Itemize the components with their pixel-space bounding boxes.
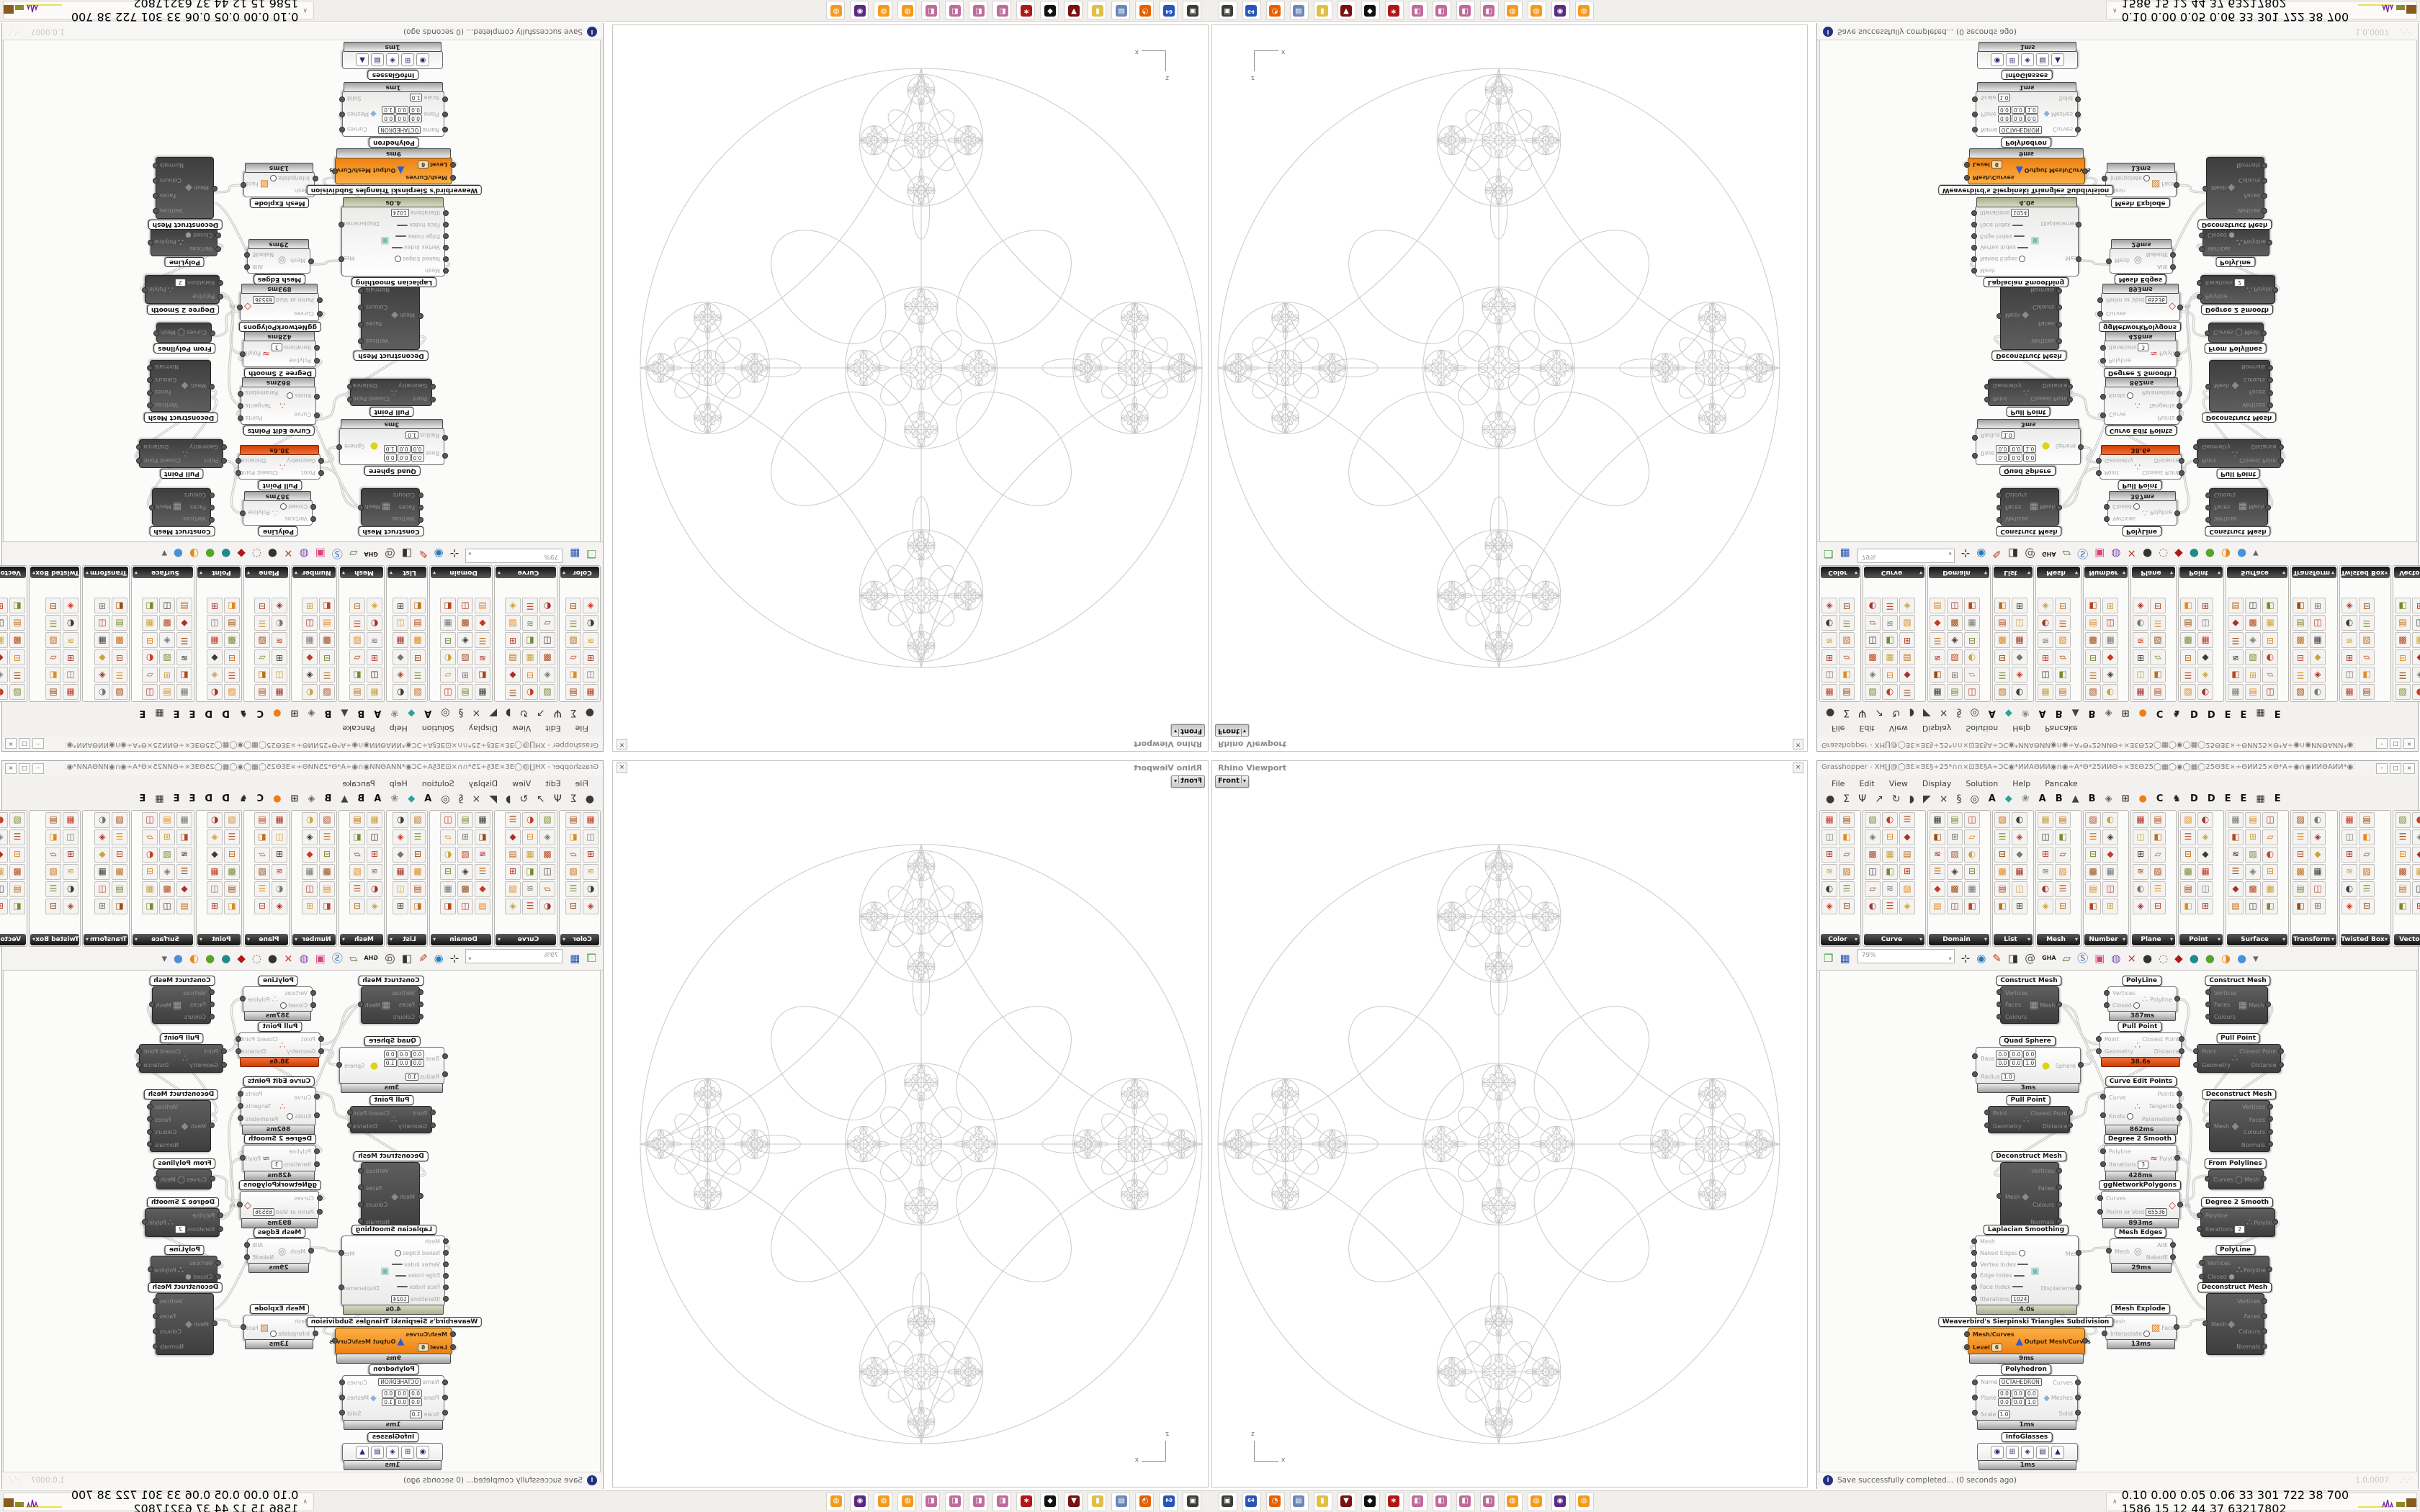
component-icon[interactable]: ▦ (272, 684, 287, 700)
gh-node-mesh-explode[interactable]: MeshInterpolate▨Faces (243, 1315, 315, 1341)
input-port[interactable] (1972, 1410, 1978, 1416)
component-icon[interactable]: ☰ (9, 829, 25, 845)
gh-node-construct-mesh-a[interactable]: VerticesFacesColours▦Mesh (361, 986, 420, 1024)
value-box[interactable]: 0.0 (398, 1059, 411, 1067)
component-icon[interactable]: ▤ (176, 899, 192, 914)
grasshopper-titlebar[interactable]: Grasshopper - XH∐@◯ƎƐ×ƎƐ§÷25*∩∩×⊡ƎƐ§A÷ƆC… (1817, 761, 2418, 775)
component-icon[interactable]: ▦ (583, 684, 599, 700)
component-icon[interactable]: ◈ (2197, 667, 2213, 683)
find-component-icon[interactable]: Ⓢ (2077, 546, 2088, 562)
component-icon[interactable]: ◫ (583, 667, 599, 683)
input-port[interactable] (2100, 1148, 2106, 1154)
plugin-tab[interactable]: ▲ (341, 793, 348, 804)
menu-item-solution[interactable]: Solution (1966, 724, 1998, 733)
input-port[interactable] (2205, 1176, 2210, 1182)
window-button[interactable]: – (32, 763, 44, 774)
zoom-level-input[interactable]: 79%▾ (1857, 949, 1955, 963)
inkscape-icon[interactable]: ◆ (1361, 1493, 1380, 1511)
component-icon[interactable]: ⊟ (319, 847, 335, 863)
component-icon[interactable]: ☰ (1882, 899, 1898, 914)
tray-chevron-icon[interactable]: ∧ (2112, 1498, 2117, 1506)
component-icon[interactable]: ◫ (1964, 812, 1980, 828)
value-box[interactable] (397, 1286, 408, 1287)
component-icon[interactable]: ◈ (2012, 667, 2027, 683)
output-port[interactable] (238, 1103, 243, 1109)
value-box[interactable]: 1024 (391, 209, 409, 217)
component-icon[interactable]: ▦ (440, 881, 456, 897)
value-box[interactable]: 65536 (253, 297, 274, 305)
glasses-icon[interactable]: ▤ (371, 53, 384, 66)
component-icon[interactable]: ▨ (410, 684, 426, 700)
more-caret[interactable]: ▾ (2253, 548, 2259, 561)
palette-category-pill[interactable]: Point▾ (2179, 934, 2223, 945)
input-port[interactable] (209, 1002, 215, 1007)
component-icon[interactable]: ▩ (319, 864, 335, 880)
plugin-tab[interactable]: E (2275, 793, 2281, 804)
component-icon[interactable]: ⊞ (2102, 598, 2118, 613)
value-box[interactable]: 0.0 (411, 1059, 424, 1067)
component-icon[interactable]: ⊞ (0, 598, 8, 613)
plugin-tab[interactable]: E (189, 793, 195, 804)
component-icon[interactable]: ◫ (0, 881, 8, 897)
component-icon[interactable]: ◫ (2038, 667, 2053, 683)
component-icon[interactable]: ◧ (2055, 667, 2071, 683)
component-icon[interactable]: ▤ (112, 615, 127, 631)
paint-app-icon-3[interactable]: ◧ (1456, 1, 1475, 19)
value-box[interactable] (395, 235, 406, 237)
component-icon[interactable]: ▦ (207, 632, 223, 648)
component-icon[interactable]: ▩ (2293, 632, 2308, 648)
glasses-icon[interactable]: ⊞ (401, 1446, 414, 1459)
crossing-wires-icon[interactable]: × (284, 548, 293, 561)
component-icon[interactable]: ☰ (319, 829, 335, 845)
component-icon[interactable]: ⊟ (2359, 899, 2375, 914)
toggle-dot[interactable] (270, 175, 277, 181)
input-port[interactable] (1971, 210, 1977, 216)
toggle-dot[interactable] (280, 503, 287, 510)
sketch-icon[interactable]: ▱ (2063, 548, 2071, 561)
component-icon[interactable]: ⊞ (94, 598, 110, 613)
media-player-icon[interactable]: ▼ (1337, 1, 1356, 19)
component-icon[interactable]: ⊞ (63, 847, 79, 863)
component-icon[interactable]: ◧ (522, 632, 538, 648)
component-icon[interactable]: ▨ (2359, 864, 2375, 880)
input-port[interactable] (1971, 1250, 1977, 1256)
value-box[interactable]: 1.0 (2023, 1059, 2036, 1067)
component-icon[interactable]: ◫ (393, 615, 408, 631)
component-icon[interactable]: ◐ (94, 684, 110, 700)
value-box[interactable]: 3 (272, 1161, 282, 1169)
component-icon[interactable]: ⊞ (367, 847, 382, 863)
component-icon[interactable]: ◆ (2102, 847, 2118, 863)
window-button[interactable]: – (32, 738, 44, 749)
component-icon[interactable]: ⊞ (63, 649, 79, 665)
component-icon[interactable]: ⊞ (1899, 864, 1915, 880)
component-icon[interactable]: ◈ (63, 899, 79, 914)
component-icon[interactable]: ⊞ (583, 847, 599, 863)
remote-control-icon[interactable]: @ (385, 548, 395, 561)
glasses-icon[interactable]: ◈ (2021, 1446, 2034, 1459)
input-port[interactable] (2106, 1248, 2112, 1254)
component-icon[interactable]: ◫ (2012, 615, 2027, 631)
palette-category-pill[interactable]: Curve▾ (496, 934, 556, 945)
component-icon[interactable]: ◈ (2412, 829, 2420, 845)
output-port[interactable] (2177, 1091, 2182, 1097)
component-icon[interactable]: ◆ (1899, 829, 1915, 845)
component-icon[interactable]: ▩ (112, 864, 127, 880)
plugin-tab[interactable]: B (2089, 708, 2096, 719)
component-icon[interactable]: ◧ (2395, 899, 2411, 914)
component-icon[interactable]: ⊟ (565, 899, 581, 914)
component-icon[interactable]: ▩ (457, 881, 473, 897)
component-icon[interactable]: ◧ (224, 899, 240, 914)
paint-app-icon-2[interactable]: ◧ (969, 1493, 987, 1511)
component-icon[interactable]: ≋ (2341, 864, 2357, 880)
component-icon[interactable]: ◫ (272, 829, 287, 845)
component-icon[interactable]: ▨ (224, 812, 240, 828)
component-icon[interactable]: ▤ (2395, 615, 2411, 631)
component-icon[interactable]: ◐ (522, 812, 538, 828)
value-box[interactable]: 0.0 (1996, 445, 2009, 453)
plugin-tab[interactable]: ▲ (2072, 793, 2079, 804)
component-icon[interactable]: ◆ (0, 847, 8, 863)
tab-tool-icon[interactable]: ↗ (537, 708, 545, 719)
component-icon[interactable]: ◈ (159, 632, 175, 648)
component-icon[interactable]: ◫ (457, 598, 473, 613)
component-icon[interactable]: ▤ (410, 881, 426, 897)
component-icon[interactable]: ◈ (457, 864, 473, 880)
toggle-dot[interactable] (2127, 1113, 2133, 1120)
zoom-extents-icon[interactable]: ⊹ (1961, 952, 1971, 965)
zoom-level-input[interactable]: 79%▾ (465, 949, 563, 963)
input-port[interactable] (2100, 1112, 2106, 1118)
component-icon[interactable]: ⊞ (272, 847, 287, 863)
input-port[interactable] (314, 345, 320, 351)
input-port[interactable] (2096, 1036, 2102, 1042)
value-box[interactable]: 2 (175, 279, 186, 287)
find-component-icon[interactable]: Ⓢ (332, 546, 343, 562)
output-port[interactable] (2076, 222, 2081, 228)
value-box[interactable]: 0.0 (2009, 454, 2022, 462)
output-port[interactable] (332, 168, 338, 174)
value-box[interactable]: 1.0 (2025, 106, 2038, 114)
output-port[interactable] (2067, 1122, 2073, 1128)
component-icon[interactable]: ⊟ (2293, 649, 2308, 665)
input-port[interactable] (443, 210, 449, 216)
input-port[interactable] (443, 1284, 449, 1290)
component-icon[interactable]: ▩ (224, 864, 240, 880)
component-icon[interactable]: ▱ (2262, 829, 2278, 845)
component-icon[interactable]: ◐ (2197, 684, 2213, 700)
component-icon[interactable]: ▦ (393, 864, 408, 880)
component-icon[interactable]: ▱ (2262, 667, 2278, 683)
plugin-tab[interactable]: ◆ (2005, 708, 2012, 719)
component-icon[interactable]: ⊞ (94, 899, 110, 914)
component-icon[interactable]: ▨ (2293, 684, 2308, 700)
component-icon[interactable]: ▱ (539, 615, 555, 631)
component-icon[interactable]: ⊟ (2262, 864, 2278, 880)
plugin-tab[interactable]: C (2156, 708, 2164, 719)
component-icon[interactable]: ◧ (2228, 829, 2244, 845)
gh-node-ggnetworkpolygons[interactable]: CurvesPerim or Void65536◇Cells (240, 1191, 319, 1220)
component-icon[interactable]: ◫ (2012, 881, 2027, 897)
palette-category-pill[interactable]: Point▾ (197, 934, 241, 945)
tab-tool-icon[interactable]: × (472, 708, 481, 719)
value-box[interactable]: 1.0 (384, 445, 397, 453)
clipping-box-icon[interactable]: ◨ (2008, 548, 2018, 561)
component-icon[interactable]: ◧ (2293, 598, 2308, 613)
plugin-tab[interactable]: ◈ (308, 793, 315, 804)
ball-green-icon[interactable]: ● (2205, 548, 2215, 561)
input-port[interactable] (1971, 268, 1977, 274)
component-icon[interactable]: ▦ (2228, 812, 2244, 828)
floppy-64-icon[interactable]: 64 (1159, 1493, 1178, 1511)
component-icon[interactable]: ◐ (2133, 615, 2148, 631)
component-icon[interactable]: ◫ (1865, 632, 1881, 648)
component-icon[interactable]: ◐ (2412, 684, 2420, 700)
component-icon[interactable]: ▱ (142, 829, 158, 845)
component-icon[interactable]: ◧ (565, 667, 581, 683)
component-icon[interactable]: ▨ (2245, 649, 2261, 665)
output-port[interactable] (332, 1338, 338, 1344)
value-box[interactable]: 1.0 (384, 1059, 397, 1067)
gh-node-deconstruct-mesh-a[interactable]: Mesh◆VerticesFacesColoursNormals (2000, 281, 2059, 350)
output-port[interactable] (2267, 1266, 2272, 1272)
component-icon[interactable]: ▨ (2245, 847, 2261, 863)
component-icon[interactable]: ◧ (1882, 632, 1898, 648)
component-icon[interactable]: ◫ (1947, 899, 1963, 914)
output-port[interactable] (2272, 287, 2278, 293)
component-icon[interactable]: ⊟ (522, 829, 538, 845)
gh-node-infoglasses[interactable]: ◉⊞◈▤▲ (1977, 50, 2078, 69)
component-icon[interactable]: ⊞ (1947, 829, 1963, 845)
tab-tool-icon[interactable]: ↻ (519, 708, 528, 719)
plugin-tab[interactable]: B (324, 793, 331, 804)
tab-tool-icon[interactable]: ◗ (506, 708, 511, 719)
output-port[interactable] (2078, 1062, 2084, 1068)
component-icon[interactable]: ▨ (1947, 847, 1963, 863)
cluster-bag-icon[interactable]: ▣ (315, 952, 326, 965)
chevron-down-icon[interactable]: ▾ (468, 953, 471, 965)
plugin-tab[interactable]: E (2241, 708, 2247, 719)
component-icon[interactable]: ☰ (2228, 864, 2244, 880)
component-icon[interactable]: ▤ (505, 649, 521, 665)
component-icon[interactable]: ▤ (457, 812, 473, 828)
paint-app-icon-3[interactable]: ◧ (945, 1, 964, 19)
gh-node-pull-point-c[interactable]: PointGeometry∴Closest PointDistance (2197, 1044, 2281, 1073)
component-icon[interactable]: ▤ (159, 684, 175, 700)
gh-node-deconstruct-mesh-c[interactable]: Mesh◆VerticesFacesColoursNormals (2209, 1100, 2270, 1152)
component-icon[interactable]: ◈ (0, 829, 8, 845)
component-icon[interactable]: ◐ (142, 847, 158, 863)
component-icon[interactable]: ☰ (224, 829, 240, 845)
component-icon[interactable]: ▤ (2055, 684, 2071, 700)
component-icon[interactable]: ◫ (2245, 899, 2261, 914)
output-port[interactable] (149, 1002, 155, 1007)
plugin-tab[interactable]: D (2208, 793, 2215, 804)
tab-tool-icon[interactable]: ◤ (1923, 708, 1931, 719)
open-file-icon[interactable]: ❒ (587, 548, 596, 561)
output-port[interactable] (153, 1313, 158, 1319)
component-icon[interactable]: ◐ (522, 684, 538, 700)
paint-app-icon-1[interactable]: ◧ (1409, 1493, 1428, 1511)
component-icon[interactable]: ▦ (176, 812, 192, 828)
ball-blue-icon[interactable]: ● (2237, 548, 2246, 561)
input-port[interactable] (310, 990, 316, 996)
component-icon[interactable]: ◧ (2085, 598, 2101, 613)
component-icon[interactable]: ◐ (207, 684, 223, 700)
value-box[interactable]: 0.0 (382, 1390, 395, 1398)
value-box[interactable]: 0.0 (2012, 1398, 2025, 1406)
output-port[interactable] (347, 384, 353, 390)
component-icon[interactable]: ▨ (319, 684, 335, 700)
output-port[interactable] (2267, 365, 2273, 371)
input-port[interactable] (2205, 330, 2210, 336)
palette-category-pill[interactable]: Plane▾ (2132, 934, 2175, 945)
menu-item-view[interactable]: View (1889, 724, 1908, 733)
component-icon[interactable]: ☰ (2085, 829, 2101, 845)
gh-node-construct-mesh-a[interactable]: VerticesFacesColours▦Mesh (2000, 986, 2059, 1024)
component-icon[interactable]: ▨ (410, 812, 426, 828)
component-icon[interactable]: ⊟ (2180, 649, 2196, 665)
terminal-icon[interactable]: ▣ (1183, 1, 1201, 19)
value-box[interactable]: 0.0 (409, 1398, 422, 1406)
component-icon[interactable]: ◈ (1865, 667, 1881, 683)
resize-grip[interactable]: ⋰⋰ (6, 28, 21, 35)
output-port[interactable] (2177, 391, 2182, 397)
plugin-tab[interactable]: ● (2138, 793, 2146, 804)
calculator-icon[interactable]: ▤ (1111, 1, 1130, 19)
floppy-64-icon[interactable]: 64 (1242, 1493, 1261, 1511)
component-icon[interactable]: ▩ (1994, 864, 2010, 880)
component-icon[interactable]: ☰ (2150, 615, 2166, 631)
output-port[interactable] (2056, 1002, 2062, 1007)
input-port[interactable] (2096, 1048, 2102, 1054)
output-port[interactable] (149, 505, 155, 510)
component-icon[interactable]: ◧ (2180, 598, 2196, 613)
viewport-view-button[interactable]: Front▾ (1171, 775, 1205, 788)
component-icon[interactable]: ⊞ (2133, 847, 2148, 863)
plugin-tab[interactable]: C (2156, 793, 2164, 804)
component-icon[interactable]: ⊟ (1994, 649, 2010, 665)
component-icon[interactable]: ⊟ (254, 899, 270, 914)
output-port[interactable] (238, 391, 243, 397)
component-icon[interactable]: ☰ (349, 881, 365, 897)
input-port[interactable] (2199, 1274, 2205, 1279)
component-icon[interactable]: ≋ (583, 632, 599, 648)
component-icon[interactable]: ◐ (0, 812, 8, 828)
input-port[interactable] (443, 233, 449, 239)
toggle-dot[interactable] (185, 232, 192, 238)
output-port[interactable] (142, 287, 148, 293)
output-port[interactable] (148, 1266, 153, 1272)
gh-node-ggnetworkpolygons[interactable]: CurvesPerim or Void65536◇Cells (2101, 292, 2180, 321)
input-port[interactable] (443, 1250, 449, 1256)
component-icon[interactable]: ▤ (505, 847, 521, 863)
output-port[interactable] (339, 1284, 344, 1290)
grasshopper-canvas[interactable]: VerticesFacesColours▦MeshConstruct MeshB… (1819, 39, 2417, 542)
terminal-icon[interactable]: ▣ (1219, 1, 1237, 19)
component-icon[interactable]: ▨ (2180, 812, 2196, 828)
component-icon[interactable]: ◈ (2412, 667, 2420, 683)
crossing-wires-icon[interactable]: × (284, 952, 293, 965)
terminal-icon[interactable]: ▣ (1183, 1493, 1201, 1511)
glasses-icon[interactable]: ◉ (1991, 1446, 2004, 1459)
window-button[interactable]: – (2376, 738, 2388, 749)
component-icon[interactable]: ▱ (565, 649, 581, 665)
paint-app-icon-4[interactable]: ◧ (1480, 1493, 1499, 1511)
clipping-box-icon[interactable]: ◨ (2008, 952, 2018, 965)
component-icon[interactable]: ▨ (9, 812, 25, 828)
plugin-tab[interactable]: C (257, 793, 264, 804)
component-icon[interactable]: ◆ (505, 667, 521, 683)
component-icon[interactable]: ◐ (1865, 899, 1881, 914)
component-icon[interactable]: ◈ (207, 667, 223, 683)
gh-node-pull-point-b[interactable]: PointGeometry∴Closest PointDistance (238, 454, 321, 480)
firefox-purple-icon[interactable]: ◉ (1551, 1493, 1570, 1511)
component-icon[interactable]: ◫ (367, 667, 382, 683)
component-icon[interactable]: ▨ (565, 864, 581, 880)
tab-tool-icon[interactable]: Ψ (554, 708, 562, 719)
component-icon[interactable]: ◫ (1964, 684, 1980, 700)
plugin-tab[interactable]: E (2275, 708, 2281, 719)
value-box[interactable]: 1.0 (405, 1073, 418, 1081)
component-icon[interactable]: ▦ (272, 812, 287, 828)
gh-node-from-polylines[interactable]: Curves○Mesh (2208, 1169, 2264, 1189)
value-box[interactable]: 6 (418, 161, 429, 168)
menu-item-file[interactable]: File (575, 779, 588, 788)
input-port[interactable] (2100, 345, 2106, 351)
input-port[interactable] (308, 258, 314, 264)
component-icon[interactable]: ⊞ (2012, 899, 2027, 914)
component-icon[interactable]: ≋ (1930, 847, 1945, 863)
input-port[interactable] (1972, 112, 1978, 117)
component-icon[interactable]: ▱ (1865, 881, 1881, 897)
output-port[interactable] (2174, 182, 2179, 188)
input-port[interactable] (2100, 358, 2106, 364)
component-icon[interactable]: ◆ (1930, 615, 1945, 631)
component-icon[interactable]: ⊟ (2150, 598, 2166, 613)
palette-category-pill[interactable]: Number▾ (292, 934, 336, 945)
gh-node-from-polylines[interactable]: Curves○Mesh (156, 1169, 212, 1189)
gh-node-degree-2-smooth-c[interactable]: PolylineIterations2∴Polyline (145, 1208, 220, 1237)
component-icon[interactable]: ◆ (94, 847, 110, 863)
input-port[interactable] (2197, 1212, 2202, 1218)
tab-tool-icon[interactable]: Σ (570, 708, 577, 719)
gha-loader-icon[interactable]: GHA (364, 955, 377, 961)
component-icon[interactable]: ◫ (2412, 615, 2420, 631)
gh-node-deconstruct-mesh-a[interactable]: Mesh◆VerticesFacesColoursNormals (2000, 1162, 2059, 1231)
input-port[interactable] (1996, 505, 2002, 510)
draw-order-icon[interactable]: ✎ (1992, 548, 2002, 561)
component-icon[interactable]: ▦ (2038, 684, 2053, 700)
plugin-tab[interactable]: ❀ (390, 708, 398, 719)
component-icon[interactable]: ◆ (302, 649, 318, 665)
component-icon[interactable]: ☰ (1930, 632, 1945, 648)
value-box[interactable]: OCTAHEDRON (378, 126, 421, 134)
component-icon[interactable]: ▨ (9, 684, 25, 700)
component-icon[interactable]: ▱ (1839, 649, 1855, 665)
component-icon[interactable]: ▤ (1839, 812, 1855, 828)
plugin-tab[interactable]: ⊞ (291, 708, 299, 719)
gh-node-polyline-c[interactable]: VerticesClosed∴Polyline (2202, 1256, 2269, 1284)
component-icon[interactable]: ◆ (2228, 881, 2244, 897)
component-icon[interactable]: ▦ (2102, 632, 2118, 648)
component-icon[interactable]: ▤ (475, 598, 490, 613)
rhino-viewport-window[interactable]: Rhino Viewport × Front▾ z x (1211, 760, 1808, 1488)
remote-control-icon[interactable]: @ (2025, 548, 2035, 561)
component-icon[interactable]: ▱ (1865, 615, 1881, 631)
